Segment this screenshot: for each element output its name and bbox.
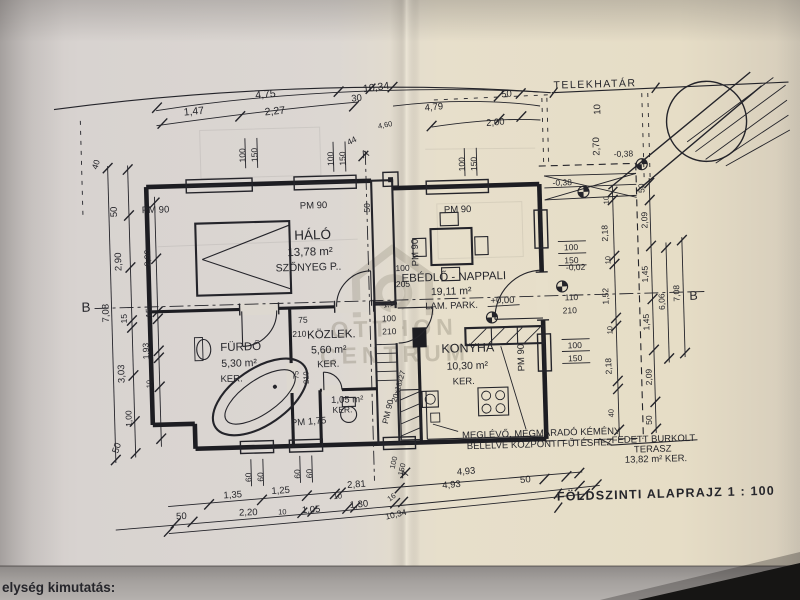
room-konyha-floor: KER. [453, 376, 475, 388]
window-dim-100: 100 [237, 148, 247, 163]
dim-top-j: 10 [592, 104, 603, 115]
dim-left-c: 2,90 [113, 252, 125, 271]
dim-bottom-j: 10 [278, 507, 287, 516]
level-m38: -0,38 [552, 177, 572, 188]
dim-window60: 60 [243, 472, 253, 482]
dim-right-m: 50 [644, 415, 654, 425]
dim-bottom-h: 50 [176, 511, 187, 522]
dim-right-overall: 7,08 [671, 285, 681, 302]
door-dim-210: 210 [563, 305, 578, 315]
dim-left-e: 3,03 [116, 364, 128, 383]
door-dim-210: 210 [382, 326, 397, 336]
dim-bottom-k: 1,05 [302, 504, 321, 516]
window-dim-150: 150 [249, 148, 259, 163]
dim-bottom-a: 1,35 [223, 489, 242, 501]
room-wc-floor: KER. [332, 404, 352, 415]
level-zero: +0,00 [490, 295, 514, 307]
room-konyha-name: KONYHA [441, 340, 495, 355]
dim-right-f: 2,18 [603, 358, 613, 375]
section-marker-b-right: B [689, 289, 698, 303]
door-dim-110b: 110 [565, 292, 579, 302]
dim-left-overall: 7,08 [100, 304, 112, 323]
dim-top-e: 4,79 [424, 101, 443, 114]
window-dim-100: 100 [564, 242, 579, 252]
room-furdo-floor: KER. [220, 373, 242, 385]
room-ebedlo-area: 19,11 m² [431, 285, 472, 298]
dim-top-f: 50 [501, 89, 512, 101]
room-halo-area: 13,78 m² [287, 246, 333, 259]
room-ebedlo-floor: LAM. PARK. [425, 300, 478, 312]
dim-right-i: 2,09 [639, 211, 649, 228]
window-dim-150: 150 [468, 156, 478, 171]
door-dim-210: 210 [292, 329, 307, 339]
dim-top-c: 1,47 [183, 105, 205, 119]
dim-left-i: 15 [144, 308, 154, 318]
room-kozlek-area: 5,60 m² [311, 343, 347, 356]
scanned-floor-plan-photo: OTTHON CENTRUM [0, 0, 800, 600]
boundary-label: TELEKHATÁR [553, 76, 636, 91]
dim-right-b: 2,18 [599, 225, 609, 242]
room-furdo-name: FÜRDŐ [220, 339, 261, 354]
level-m38: -0,38 [614, 148, 634, 159]
dim-right-j: 1,45 [640, 265, 650, 282]
dim-window60: 60 [255, 472, 265, 482]
dim-right-c: 10 [603, 256, 612, 265]
dim-top-b: 30 [351, 93, 363, 105]
dim-top-a: 4,75 [255, 88, 277, 102]
door-dim-100: 100 [382, 313, 397, 323]
room-kozlek-floor: KER. [317, 359, 339, 371]
wall-dim-50: 50 [362, 203, 372, 213]
door-dim-75: 75 [291, 371, 300, 380]
window-dim-100: 100 [325, 151, 335, 166]
dim-right-g: 40 [607, 409, 616, 418]
dim-left-h: 2,90 [142, 249, 152, 266]
dim-left-b: 50 [109, 206, 120, 217]
room-terasz-area: 13,82 m² KER. [625, 453, 688, 466]
window-tag-pm90: PM 90 [444, 204, 472, 216]
window-tag-pm90: PM 90 [300, 200, 328, 212]
section-marker-b-left: B [81, 300, 90, 315]
dim-bottom-i: 2,20 [239, 507, 258, 519]
dim-left-k: 10 [145, 380, 154, 389]
window-tag-pm90: PM 90 [142, 204, 170, 216]
dim-bottom-e: 4,93 [456, 465, 475, 477]
dim-bottom-f: 4,93 [442, 479, 461, 491]
dim-top-k: 2,70 [591, 137, 603, 156]
dim-right-l: 2,09 [643, 368, 653, 385]
dim-right-n: 6,06 [656, 293, 666, 310]
dim-right-e: 10 [605, 326, 614, 335]
window-tag-pm90: PM 90 [410, 239, 422, 267]
dim-right-h: 50 [636, 183, 646, 193]
dim-window60: 60 [292, 469, 302, 479]
dim-right-k: 1,45 [641, 313, 651, 330]
door-dim-210: 210 [301, 371, 310, 384]
dim-top-g: 2,00 [486, 117, 505, 129]
window-dim-100: 100 [568, 340, 583, 350]
dim-right-d: 1,52 [600, 288, 610, 305]
floor-plan-svg: OTTHON CENTRUM [0, 0, 800, 600]
dim-right-a: 10 [602, 196, 611, 205]
dim-left-f: 1,00 [123, 410, 133, 427]
window-dim-150: 150 [568, 353, 583, 363]
room-halo-name: HÁLÓ [294, 227, 331, 243]
dim-bottom-d: 10 [333, 491, 342, 501]
room-furdo-area: 5,30 m² [221, 357, 257, 370]
dim-left-d: 15 [119, 314, 129, 324]
dim-bottom-g: 50 [520, 474, 531, 486]
level-m02: -0,02 [566, 262, 586, 273]
dim-bottom-l: 1,30 [349, 498, 368, 510]
next-sheet-label: elység kimutatás: [2, 580, 115, 595]
dim-top-d: 2,27 [264, 104, 286, 118]
dim-window60: 60 [304, 468, 314, 478]
room-kozlek-name: KÖZLEK. [307, 328, 356, 341]
dim-bottom-b: 1,25 [271, 485, 290, 497]
window-tag-pm90: PM 90 [516, 344, 528, 372]
room-konyha-area: 10,30 m² [446, 360, 488, 373]
dim-bottom-c: 2,81 [347, 479, 366, 491]
window-dim-150: 150 [337, 151, 347, 166]
door-dim-100: 100 [395, 263, 410, 273]
dim-left-j: 1,93 [141, 342, 151, 359]
window-dim-100: 100 [456, 157, 466, 172]
door-dim-75: 75 [298, 315, 308, 325]
